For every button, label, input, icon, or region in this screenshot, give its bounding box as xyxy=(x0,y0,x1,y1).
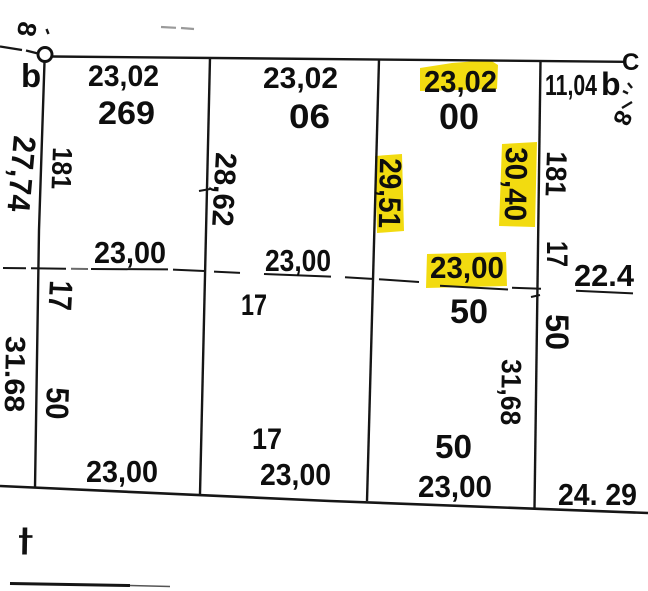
svg-text:23,00: 23,00 xyxy=(418,469,492,504)
svg-text:22.4: 22.4 xyxy=(574,258,635,293)
svg-text:b: b xyxy=(21,57,41,94)
svg-text:23,00: 23,00 xyxy=(94,235,166,270)
svg-text:17: 17 xyxy=(540,241,573,267)
svg-text:C: C xyxy=(622,49,639,76)
svg-text:181: 181 xyxy=(46,147,78,190)
svg-text:181: 181 xyxy=(538,151,572,197)
svg-text:23,02: 23,02 xyxy=(88,60,159,93)
svg-text:50: 50 xyxy=(539,314,575,350)
svg-text:06: 06 xyxy=(289,98,330,136)
svg-text:17: 17 xyxy=(241,289,267,322)
svg-text:b: b xyxy=(601,66,621,102)
svg-text:23,00: 23,00 xyxy=(86,454,158,489)
svg-text:269: 269 xyxy=(98,95,155,131)
svg-text:17: 17 xyxy=(41,280,80,312)
svg-text:23,00: 23,00 xyxy=(260,457,331,492)
svg-text:50: 50 xyxy=(450,293,488,331)
svg-text:24. 29: 24. 29 xyxy=(558,477,637,512)
svg-text:50: 50 xyxy=(39,387,76,420)
svg-text:27,74: 27,74 xyxy=(0,134,43,213)
svg-text:23,02: 23,02 xyxy=(424,64,497,99)
svg-text:31,68: 31,68 xyxy=(495,359,527,426)
svg-text:31.68: 31.68 xyxy=(0,336,31,413)
svg-text:23,00: 23,00 xyxy=(430,250,504,285)
svg-text:50: 50 xyxy=(435,428,472,465)
svg-text:00: 00 xyxy=(439,96,479,137)
svg-text:30,40: 30,40 xyxy=(498,147,534,222)
svg-text:23,00: 23,00 xyxy=(265,243,331,278)
svg-text:11,04: 11,04 xyxy=(545,70,597,102)
svg-text:29,51: 29,51 xyxy=(372,158,408,229)
svg-text:23,02: 23,02 xyxy=(263,62,338,95)
svg-text:28,62: 28,62 xyxy=(205,152,242,228)
svg-text:17: 17 xyxy=(252,423,282,456)
